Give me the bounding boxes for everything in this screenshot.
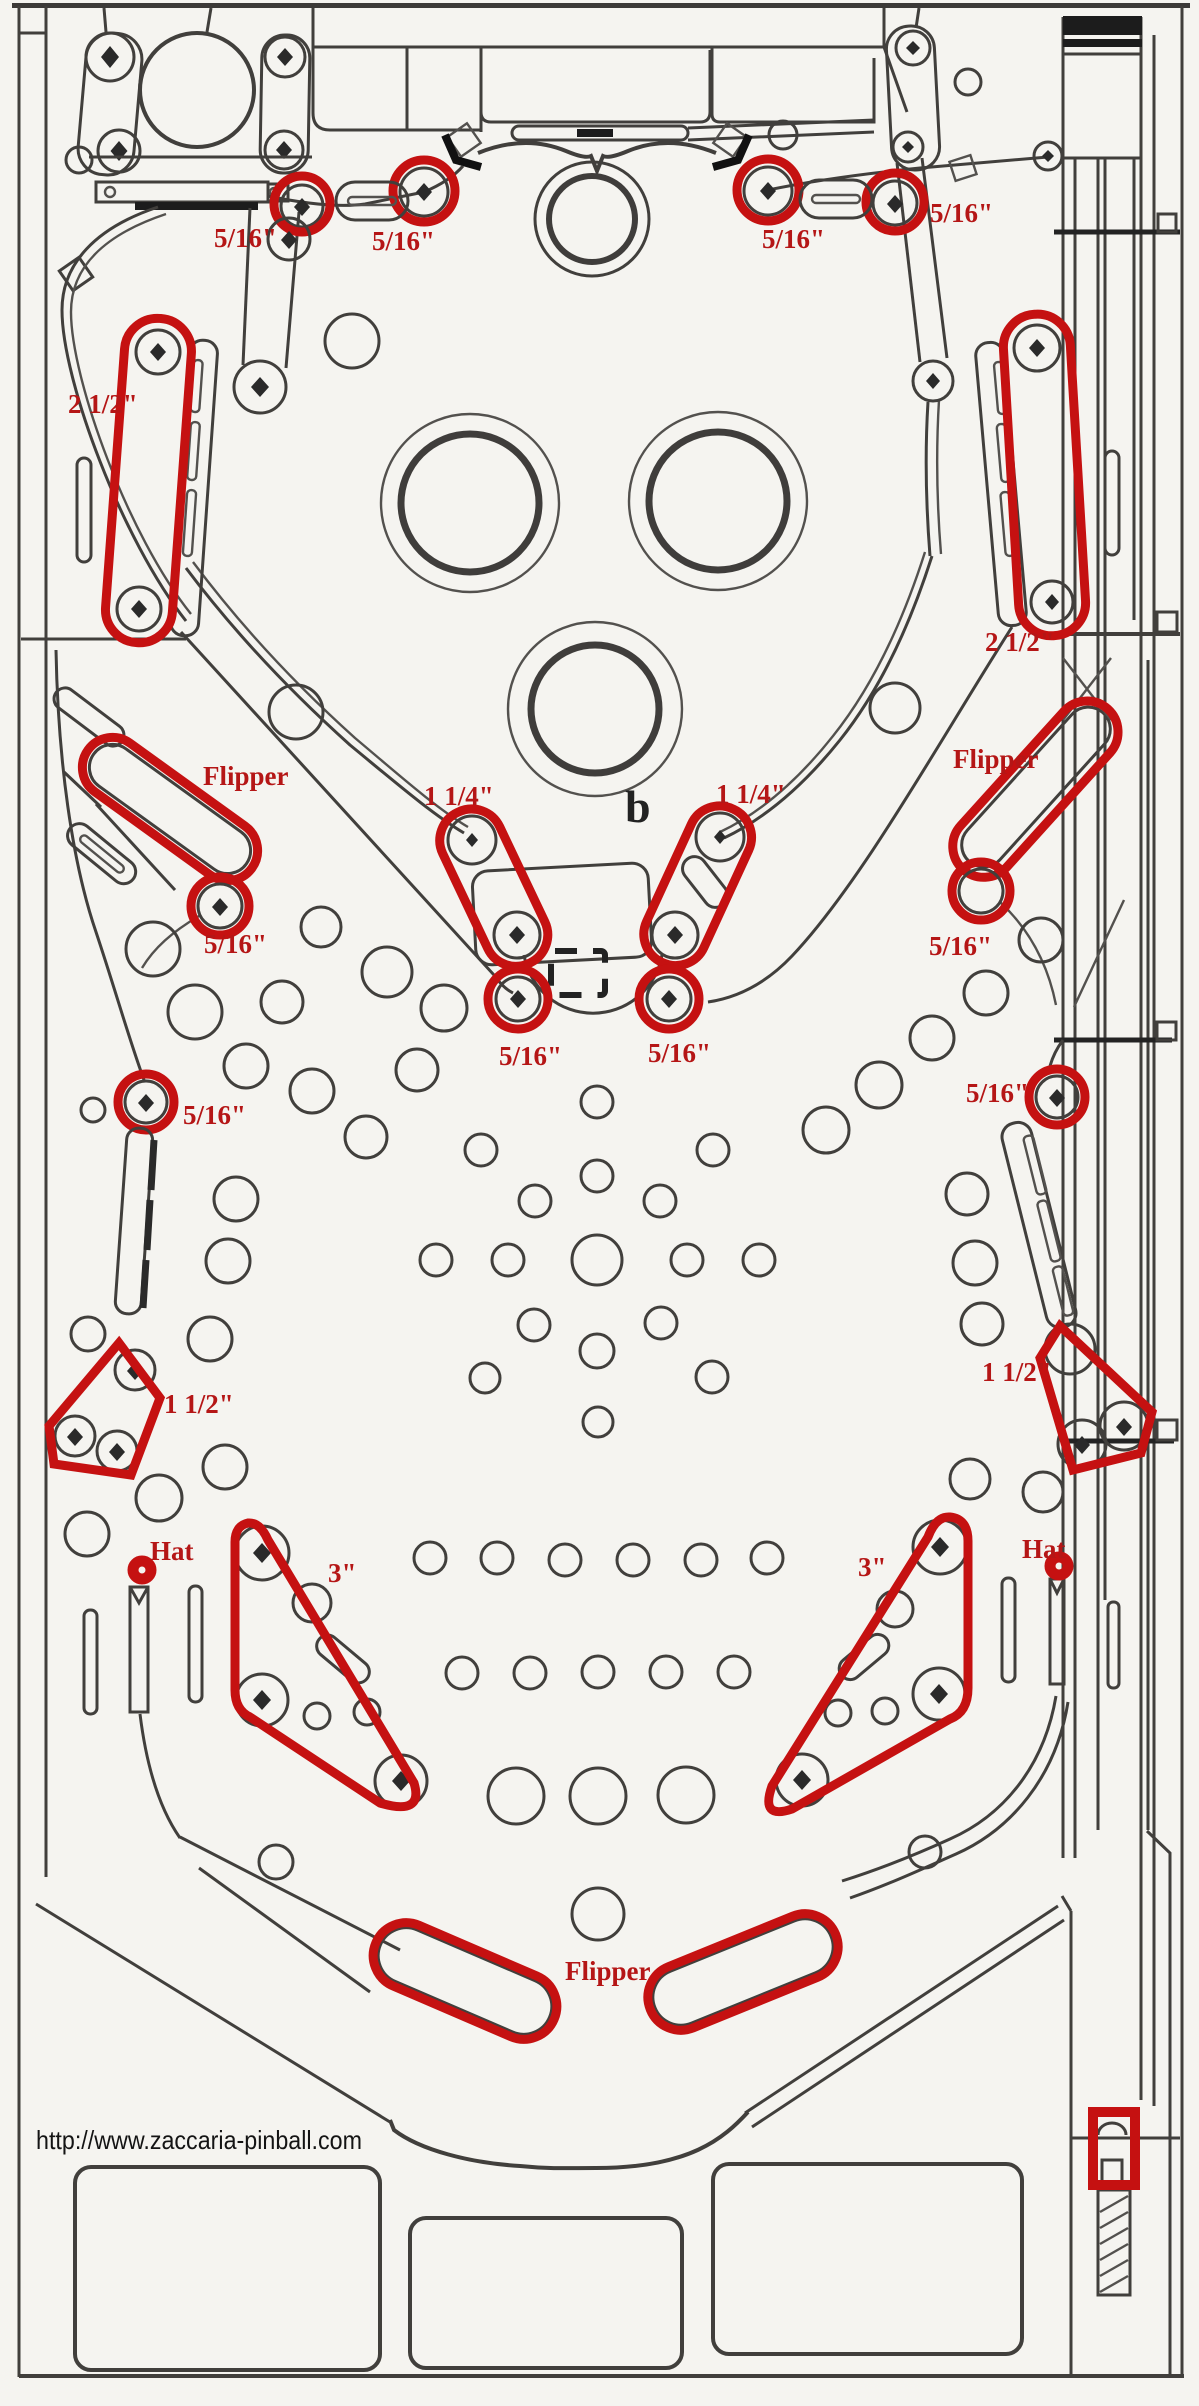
svg-text:5/16": 5/16" — [966, 1078, 1029, 1108]
svg-text:3": 3" — [858, 1552, 887, 1582]
svg-text:5/16": 5/16" — [929, 931, 992, 961]
svg-text:5/16": 5/16" — [499, 1041, 562, 1071]
svg-text:Hat: Hat — [1022, 1534, 1066, 1564]
svg-text:Flipper: Flipper — [953, 744, 1039, 774]
svg-text:5/16": 5/16" — [762, 224, 825, 254]
svg-text:b: b — [625, 781, 651, 832]
svg-text:1 1/4": 1 1/4" — [424, 781, 494, 811]
svg-text:2 1/2": 2 1/2" — [68, 389, 138, 419]
svg-text:1 1/2": 1 1/2" — [982, 1357, 1052, 1387]
svg-text:Flipper: Flipper — [565, 1956, 651, 1986]
svg-text:1 1/4": 1 1/4" — [716, 779, 786, 809]
svg-text:2 1/2": 2 1/2" — [985, 627, 1055, 657]
svg-text:http://www.zaccaria-pinball.co: http://www.zaccaria-pinball.com — [36, 2125, 362, 2155]
svg-text:3": 3" — [328, 1558, 357, 1588]
svg-text:1 1/2": 1 1/2" — [164, 1389, 234, 1419]
svg-text:5/16": 5/16" — [648, 1038, 711, 1068]
svg-text:5/16": 5/16" — [204, 929, 267, 959]
svg-text:Hat: Hat — [150, 1536, 194, 1566]
svg-text:5/16": 5/16" — [372, 226, 435, 256]
svg-text:Flipper: Flipper — [203, 761, 289, 791]
svg-text:5/16": 5/16" — [214, 223, 277, 253]
svg-text:5/16": 5/16" — [183, 1100, 246, 1130]
svg-text:5/16": 5/16" — [930, 198, 993, 228]
